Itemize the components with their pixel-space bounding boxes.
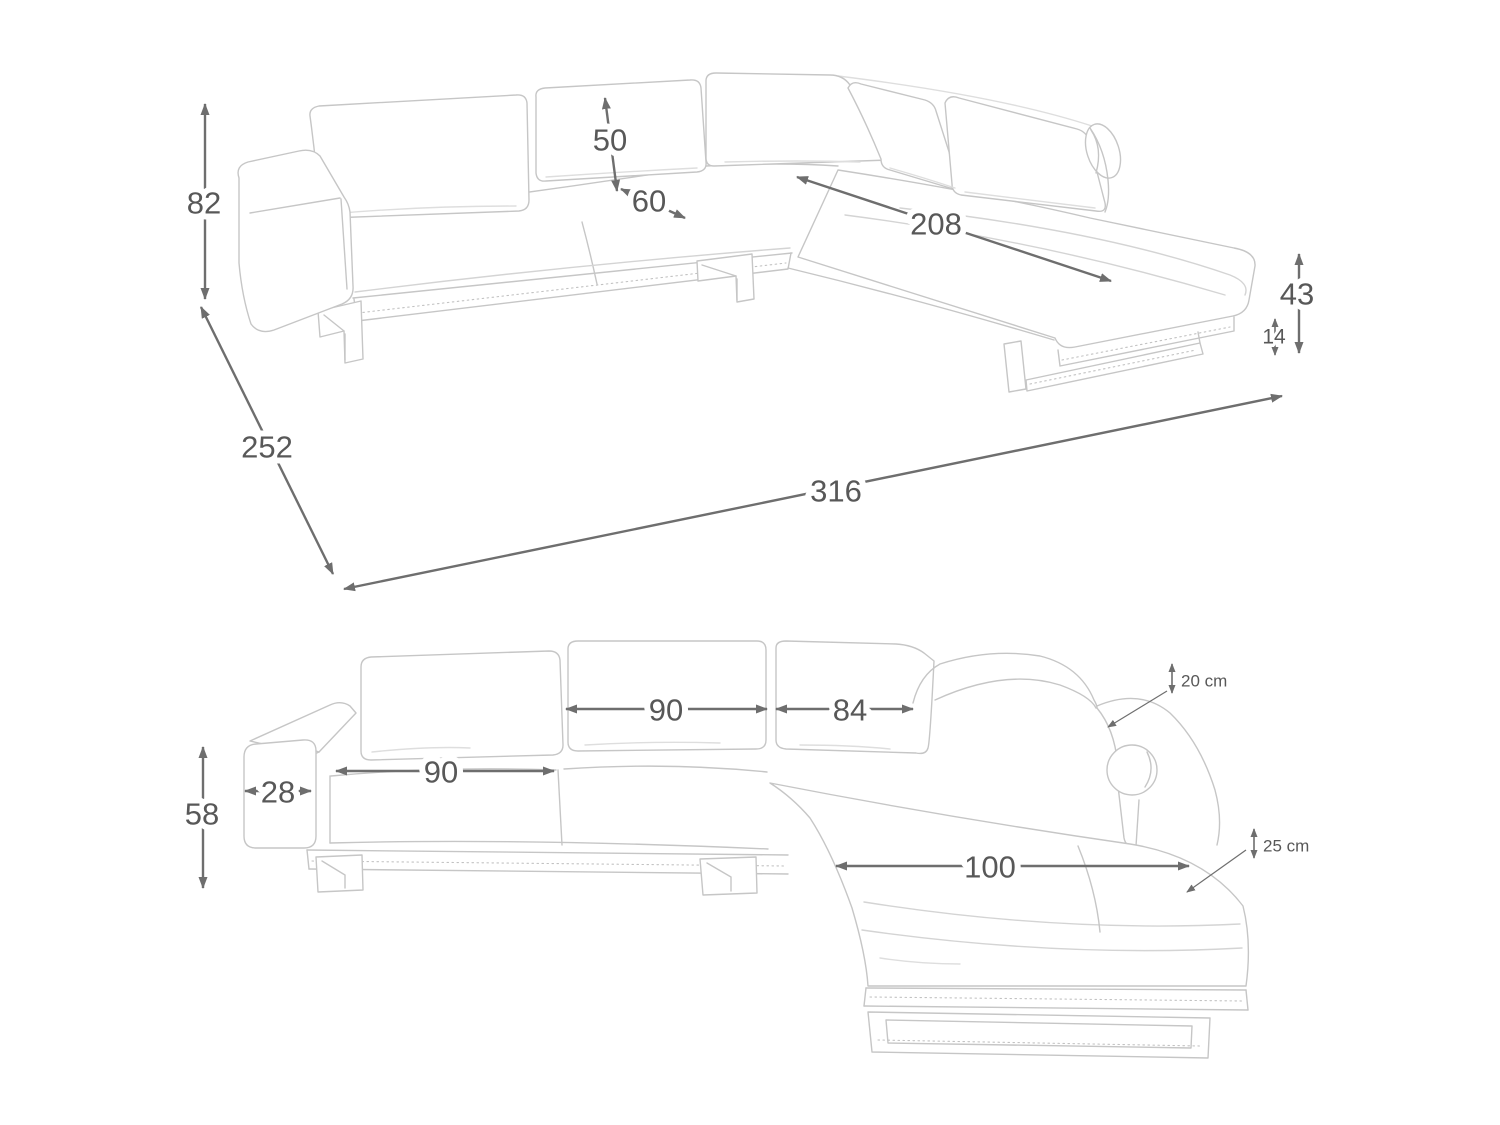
dimension-label: 82	[187, 186, 221, 221]
dimension-label: 20 cm	[1181, 672, 1227, 691]
front-view-sofa	[244, 641, 1248, 1058]
dim-total-height-82: 82	[187, 104, 221, 299]
dim-arm-height-58: 58	[185, 747, 219, 888]
chaise-front-view	[770, 783, 1248, 1058]
dimension-label: 84	[833, 693, 867, 728]
dimension-label: 90	[424, 755, 458, 790]
dim-base-clearance-14: 14	[1262, 319, 1286, 355]
dimension-label: 208	[910, 207, 962, 242]
dimension-label: 28	[261, 775, 295, 810]
dimension-label: 60	[632, 184, 666, 219]
sofa-seat-base-front-view	[307, 766, 788, 895]
dim-total-width-316: 316	[344, 396, 1282, 589]
dim-total-depth-252: 252	[201, 307, 333, 574]
top-view-sofa	[238, 73, 1255, 392]
dimension-label: 43	[1280, 277, 1314, 312]
dimension-label: 14	[1262, 326, 1286, 349]
dim-back-cushion-thickness-20cm: 20 cm	[1108, 664, 1227, 727]
dimension-label: 316	[810, 474, 862, 509]
sofa-back-cushions-front-view	[361, 641, 1220, 846]
dim-seat-depth-60: 60	[621, 184, 685, 219]
dimension-label: 50	[593, 123, 627, 158]
leader-line	[1108, 691, 1167, 727]
diagram-canvas: 8250602082523164314582890908410020 cm25 …	[0, 0, 1500, 1125]
sofa-dimension-diagram: 8250602082523164314582890908410020 cm25 …	[0, 0, 1500, 1125]
sofa-back-cushions-top-view	[310, 73, 1127, 218]
dimension-label: 58	[185, 797, 219, 832]
dimension-label: 25 cm	[1263, 837, 1309, 856]
dimension-label: 90	[649, 693, 683, 728]
roll-pillow-front-view	[1107, 745, 1157, 795]
dimension-label: 100	[964, 850, 1016, 885]
dimension-label: 252	[241, 430, 293, 465]
